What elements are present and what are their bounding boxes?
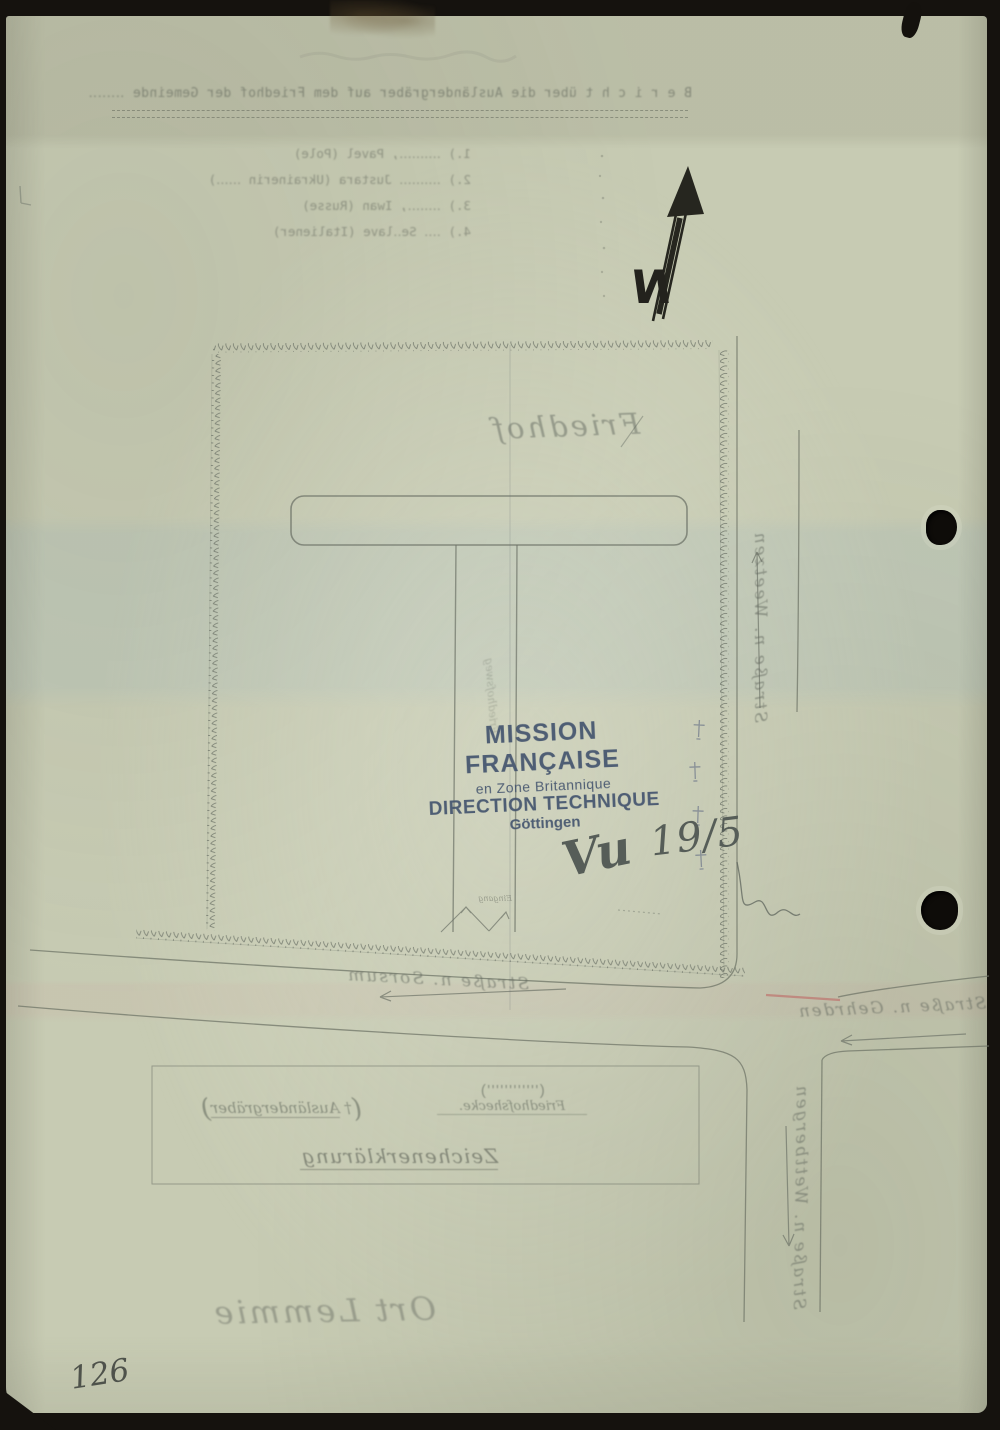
legend-entry-hedge: ('''''''''''') Friedhofshecke.	[437, 1082, 587, 1115]
vu-date: 19/5	[648, 808, 747, 865]
paren: (	[538, 1082, 545, 1099]
stamp-line-1: MISSION FRANÇAISE	[411, 713, 673, 782]
vu-word: Vu	[557, 819, 636, 888]
mission-stamp: MISSION FRANÇAISE en Zone Britannique DI…	[411, 713, 676, 838]
north-arrow-icon: N	[628, 166, 704, 321]
hedge-symbol: ''''''''''''	[486, 1082, 538, 1099]
cemetery-map-sketch: N	[0, 0, 1000, 1430]
street-label-wettbergen: Straße n. Wettbergen	[789, 1072, 812, 1310]
legend-title: Zeichenerklärung	[300, 1144, 498, 1170]
paren: )	[479, 1082, 486, 1099]
paren: (	[352, 1094, 362, 1124]
map-label-village: Ort Lemmie	[196, 1290, 437, 1332]
red-pencil-mark	[766, 995, 840, 1000]
legend-entry-graves: († Ausländergräber)	[162, 1094, 362, 1124]
gate-marks	[441, 907, 509, 932]
paren: )	[201, 1094, 211, 1124]
scanned-document: B e r i c h t über die Ausländergräber a…	[0, 0, 1000, 1430]
stray-pencil-marks	[20, 52, 643, 447]
map-label-friedhof: Friedhof	[449, 407, 640, 448]
street-label-weetzen: Straße n. Weetzen	[750, 495, 770, 723]
handwritten-vu-annotation: Vu 19/5	[562, 826, 802, 882]
north-label: N	[628, 260, 674, 314]
faint-dot-column	[599, 155, 606, 297]
cemetery-hedge-boundary	[136, 340, 745, 978]
map-label-gate: Eingang	[448, 894, 512, 903]
stain-mark	[330, 0, 435, 38]
hedge-label: Friedhofshecke.	[437, 1099, 587, 1115]
punch-hole-bottom	[921, 891, 958, 930]
cross-symbol: †	[344, 1099, 352, 1117]
graves-label: Ausländergräber	[211, 1099, 340, 1118]
